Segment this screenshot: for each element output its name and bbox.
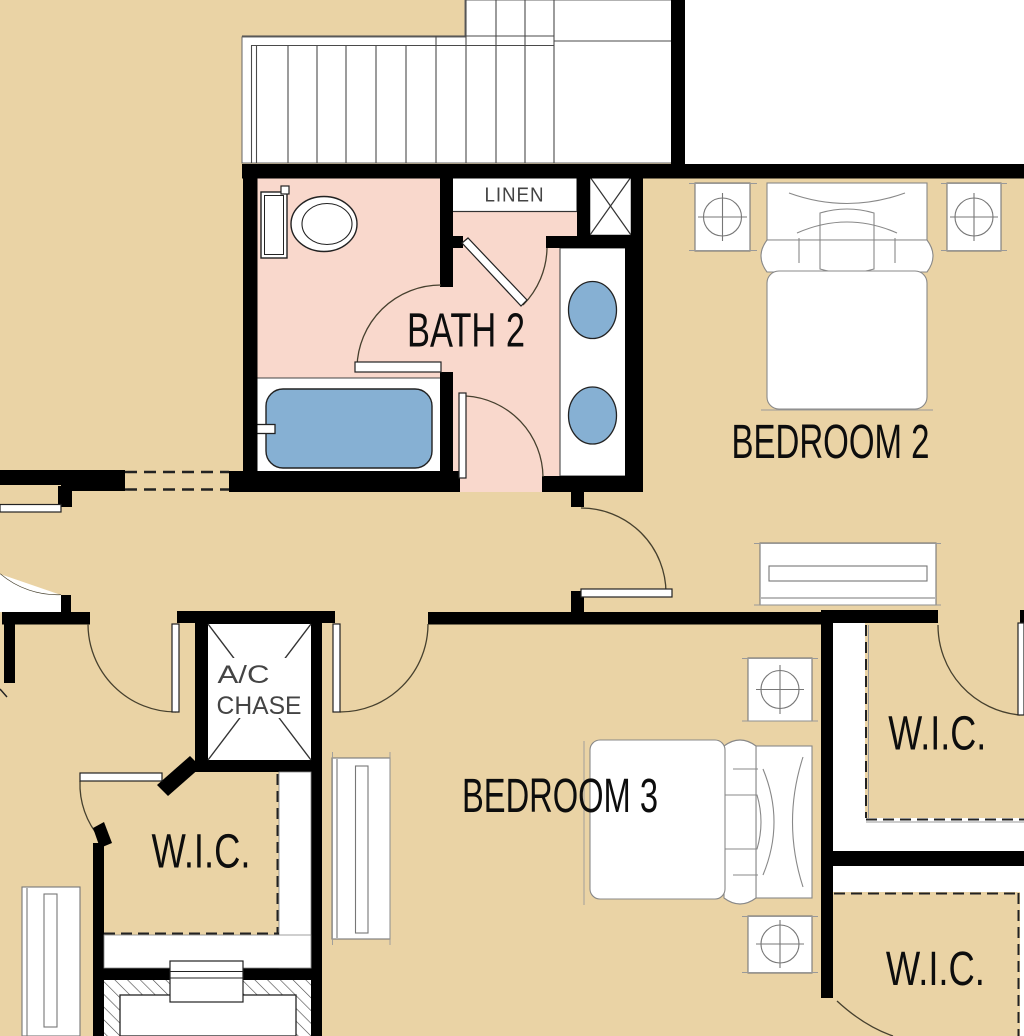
svg-text:W.I.C.: W.I.C.: [886, 943, 985, 996]
svg-text:BATH 2: BATH 2: [407, 305, 525, 358]
svg-text:BEDROOM 2: BEDROOM 2: [732, 416, 930, 469]
svg-text:W.I.C.: W.I.C.: [152, 826, 251, 879]
svg-text:LINEN: LINEN: [485, 185, 545, 207]
svg-text:BEDROOM 3: BEDROOM 3: [462, 770, 658, 823]
svg-text:W.I.C.: W.I.C.: [888, 708, 986, 761]
svg-text:CHASE: CHASE: [217, 692, 302, 720]
svg-text:A/C: A/C: [218, 661, 270, 689]
